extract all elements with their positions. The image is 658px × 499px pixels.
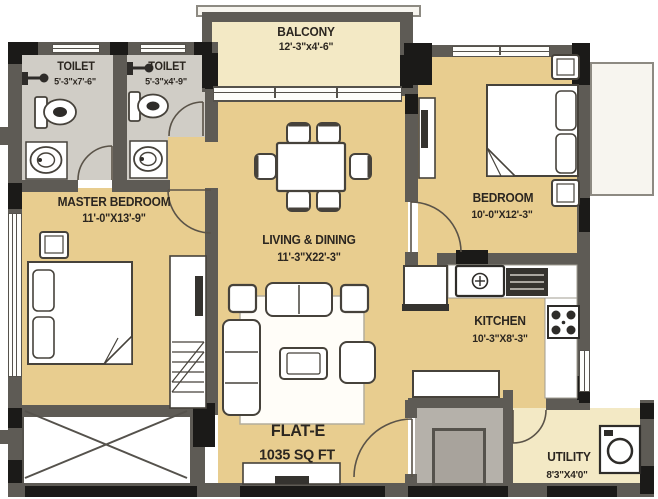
wardrobe-icon [419, 98, 435, 178]
wc-icon [35, 97, 76, 128]
room-dims-bedroom: 10'-0"X12'-3" [471, 209, 532, 221]
stove-icon [548, 306, 579, 338]
floor-plan: BALCONY 12'-3"x4'-6" TOILET 5'-3"x7'-6" … [0, 0, 658, 499]
room-label-master-bedroom: MASTER BEDROOM [58, 195, 171, 209]
room-label-bedroom: BEDROOM [473, 191, 534, 205]
room-dims-utility: 8'3"X4'0" [546, 469, 587, 481]
bed-icon [487, 85, 578, 176]
room-dims-kitchen: 10'-3"X8'-3" [472, 333, 528, 345]
room-label-toilet-1: TOILET [57, 61, 95, 73]
sofa-two-seater-icon [266, 283, 332, 316]
coffee-table-icon [280, 348, 327, 379]
flat-area: 1035 SQ FT [259, 447, 335, 464]
armchair-icon [340, 342, 375, 383]
sofa-three-seater-icon [223, 320, 260, 415]
room-dims-toilet-1: 5'-3"x7'-6" [54, 77, 96, 88]
dining-table-icon [255, 123, 371, 211]
washing-machine-icon [600, 426, 640, 473]
refrigerator-icon [402, 266, 449, 311]
room-label-toilet-2: TOILET [148, 61, 186, 73]
bed-icon [28, 262, 132, 364]
room-label-balcony: BALCONY [277, 25, 334, 39]
washbasin-icon [130, 141, 167, 178]
room-dims-master-bedroom: 11'-0"X13'-9" [82, 213, 146, 225]
washbasin-icon [26, 142, 67, 179]
wardrobe-icon [170, 256, 206, 408]
room-label-living-dining: LIVING & DINING [262, 233, 355, 247]
room-dims-toilet-2: 5'-3"x4'-9" [145, 77, 187, 88]
shower-icon [22, 72, 49, 85]
flat-name: FLAT-E [271, 421, 325, 441]
void-cross-icon [25, 411, 187, 478]
room-dims-balcony: 12'-3"x4'-6" [279, 41, 333, 53]
sink-icon [456, 266, 548, 296]
tv-unit-icon [243, 463, 340, 484]
room-dims-living-dining: 11'-3"X22'-3" [277, 252, 341, 264]
room-label-kitchen: KITCHEN [474, 314, 525, 328]
bedside-table-icon [40, 232, 68, 258]
room-label-utility: UTILITY [547, 450, 591, 464]
wc-icon [129, 92, 168, 121]
